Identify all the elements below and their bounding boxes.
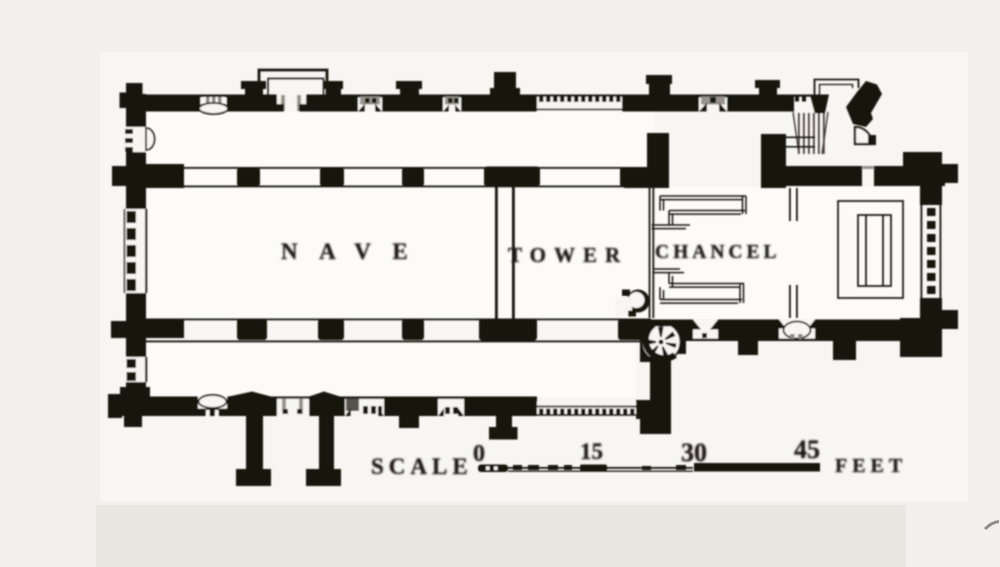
svg-text:FEET: FEET: [835, 455, 907, 477]
svg-text:TOWER: TOWER: [508, 243, 628, 267]
svg-text:15: 15: [580, 439, 603, 464]
svg-text:0: 0: [473, 441, 485, 467]
svg-text:30: 30: [681, 438, 707, 467]
svg-text:45: 45: [794, 435, 820, 464]
svg-text:CHANCEL: CHANCEL: [655, 242, 781, 263]
svg-text:NAVE: NAVE: [281, 239, 429, 264]
svg-text:SCALE: SCALE: [371, 454, 473, 479]
